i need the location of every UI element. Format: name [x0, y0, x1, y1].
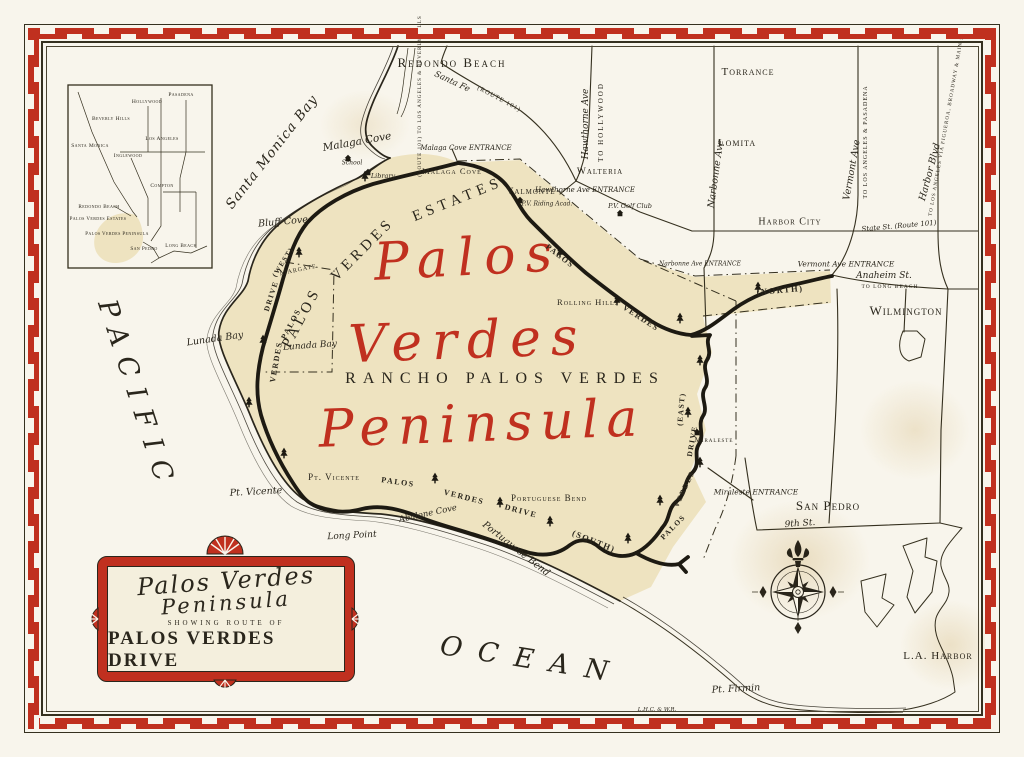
- inset-map: [68, 85, 212, 268]
- vermont-ave-road: [832, 46, 858, 275]
- frame-band-left: [28, 28, 39, 729]
- hawthorne-ave-road: [576, 46, 592, 181]
- compass-rose-icon: [752, 540, 844, 634]
- cartouche-subtitle: SHOWING ROUTE OF: [168, 619, 285, 627]
- shell-ornament-left-icon: [82, 605, 100, 633]
- la-harbor-shapes: [861, 331, 962, 710]
- frame-band-bottom: [28, 718, 996, 729]
- harbor-blvd-road: [938, 46, 948, 289]
- ninth-st-road: [757, 523, 940, 530]
- house-icon: [617, 210, 623, 216]
- shell-ornament-right-icon: [350, 605, 368, 633]
- fleur-de-lis-icon: [787, 540, 809, 567]
- frame-band-right: [985, 28, 996, 729]
- frame-band-top: [28, 28, 996, 39]
- house-icon: [345, 155, 351, 161]
- cartouche-main-title: PALOS VERDES DRIVE: [108, 628, 344, 672]
- shell-ornament-top-icon: [203, 531, 247, 557]
- title-cartouche: Palos Verdes Peninsula SHOWING ROUTE OF …: [97, 556, 355, 682]
- shell-ornament-bottom-icon: [211, 678, 239, 694]
- anaheim-st-road: [832, 275, 978, 289]
- map-canvas: Redondo BeachTorranceLomitaHarbor CityWi…: [0, 0, 1024, 757]
